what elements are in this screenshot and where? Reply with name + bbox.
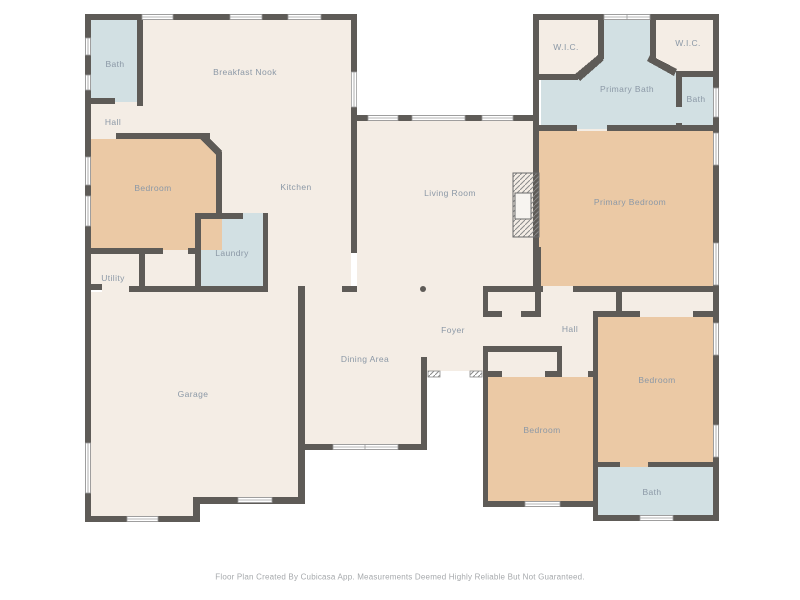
room-label-breakfast-nook: Breakfast Nook <box>213 67 277 77</box>
room-label-dining-area: Dining Area <box>341 354 389 364</box>
door-pivot-dot <box>142 134 146 138</box>
floor-plan-page: BathBreakfast NookHallBedroomKitchenLaun… <box>0 0 800 600</box>
room-label-primary-bedroom: Primary Bedroom <box>594 197 666 207</box>
fireplace <box>513 173 539 237</box>
room-label-hall-top-left: Hall <box>105 117 121 127</box>
room-label-bedroom-bottom: Bedroom <box>523 425 560 435</box>
room-label-wic-right: W.I.C. <box>675 38 701 48</box>
room-label-bath-top-right: Bath <box>686 94 705 104</box>
door-pivot-dot <box>420 286 426 292</box>
room-label-utility: Utility <box>101 273 125 283</box>
room-label-kitchen: Kitchen <box>280 182 311 192</box>
room-label-living-room: Living Room <box>424 188 476 198</box>
room-label-laundry: Laundry <box>215 248 249 258</box>
room-label-bath-bottom-right: Bath <box>642 487 661 497</box>
room-label-primary-bath: Primary Bath <box>600 84 654 94</box>
room-label-hall-center: Hall <box>562 324 578 334</box>
footer-credit-text: Floor Plan Created By Cubicasa App. Meas… <box>215 573 585 582</box>
room-label-garage: Garage <box>178 389 209 399</box>
floor-plan-drawing <box>0 0 800 600</box>
room-label-wic-left: W.I.C. <box>553 42 579 52</box>
room-label-foyer: Foyer <box>441 325 465 335</box>
room-label-bedroom-right: Bedroom <box>638 375 675 385</box>
room-label-bath-top-left: Bath <box>105 59 124 69</box>
entry-sidelight-windows <box>428 371 482 377</box>
room-label-bedroom-top-left: Bedroom <box>134 183 171 193</box>
